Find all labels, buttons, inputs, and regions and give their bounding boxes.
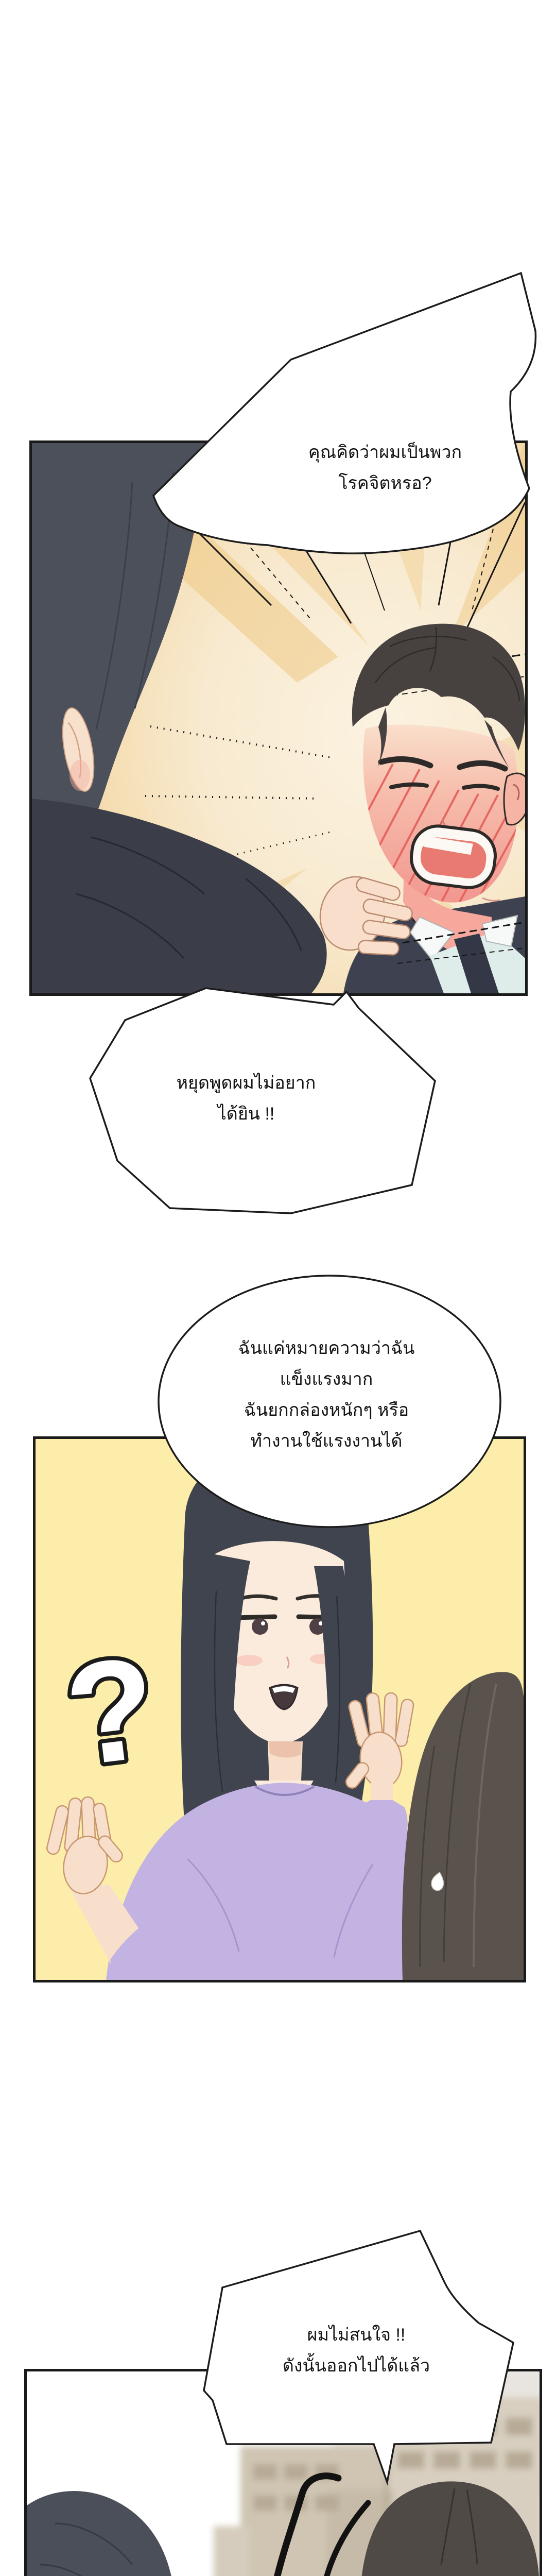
bubble-line: ฉันยกกล่องหนักๆ หรือ xyxy=(238,1395,415,1426)
bubble-line: ได้ยิน !! xyxy=(177,1098,316,1129)
explanation-text: ฉันแค่หมายความว่าฉัน แข็งแรงมาก ฉันยกกล่… xyxy=(238,1333,415,1456)
bubble-line: ดังนั้นออกไปได้แล้ว xyxy=(283,2350,430,2381)
accusation-text: คุณคิดว่าผมเป็นพวก โรคจิตหรอ? xyxy=(308,437,462,499)
bubble-line: หยุดพูดผมไม่อยาก xyxy=(177,1067,316,1098)
bubble-line: ทำงานใช้แรงงานได้ xyxy=(238,1426,415,1456)
comic-page: คุณคิดว่าผมเป็นพวก โรคจิตหรอ? หยุดพูดผมไ… xyxy=(0,0,556,2576)
shouting-mouth xyxy=(408,823,498,891)
bubble-line: แข็งแรงมาก xyxy=(238,1364,415,1395)
bubble-line: ผมไม่สนใจ !! xyxy=(283,2319,430,2350)
speech-bubble-accusation xyxy=(147,260,548,569)
bubble-line: ฉันแค่หมายความว่าฉัน xyxy=(238,1333,415,1364)
bubble-line: โรคจิตหรอ? xyxy=(308,468,462,499)
stop-talking-text: หยุดพูดผมไม่อยาก ได้ยิน !! xyxy=(177,1067,316,1129)
man-ear xyxy=(504,773,528,825)
bubble-line: คุณคิดว่าผมเป็นพวก xyxy=(308,437,462,468)
dismissal-text: ผมไม่สนใจ !! ดังนั้นออกไปได้แล้ว xyxy=(283,2319,430,2381)
